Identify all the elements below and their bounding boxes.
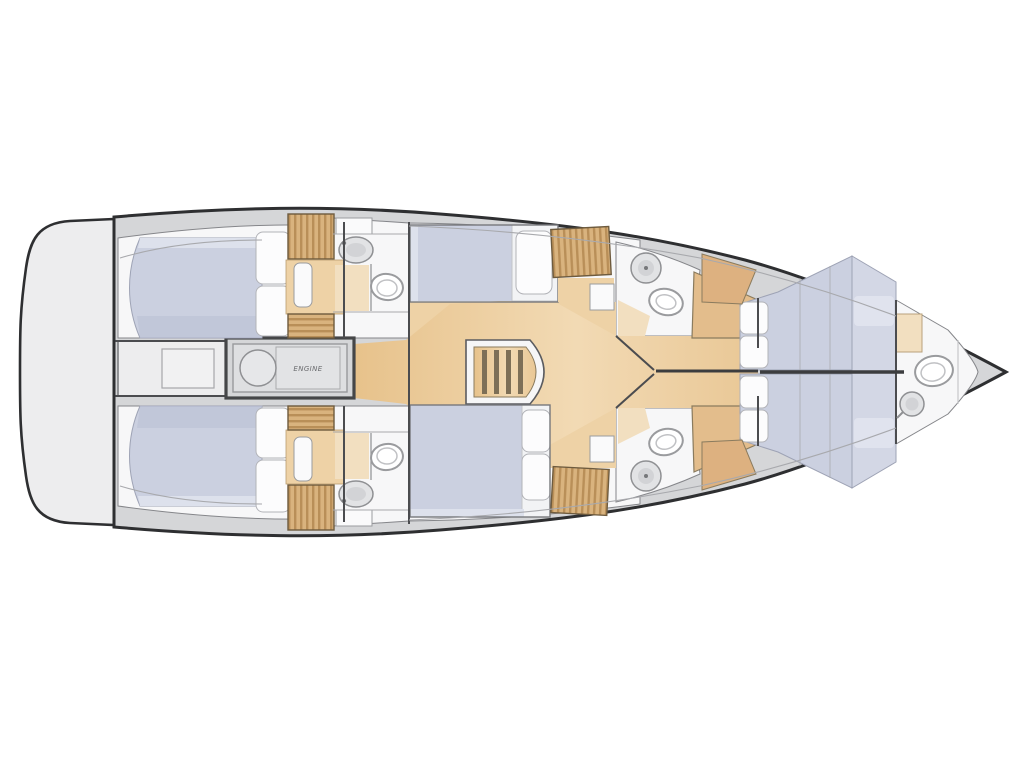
stair-step xyxy=(518,350,523,394)
mid-stbd-berth xyxy=(410,405,524,517)
pillow xyxy=(522,454,550,500)
side-cabinet xyxy=(896,314,922,352)
stair-step xyxy=(482,350,487,394)
engine-room: ENGINE xyxy=(226,338,354,398)
companionway-stairs xyxy=(466,340,544,404)
cabinet xyxy=(336,218,372,234)
pillow xyxy=(522,410,550,452)
wardrobe xyxy=(551,227,611,278)
head-floor xyxy=(335,433,369,479)
pillow xyxy=(740,376,768,408)
mid-cabin-port xyxy=(410,225,614,310)
pillow xyxy=(740,336,768,368)
yacht-floorplan: ENGINE xyxy=(0,0,1024,768)
storage-chest xyxy=(288,314,334,338)
stern-swim-platform xyxy=(20,219,114,525)
head-floor xyxy=(335,265,369,311)
engine-label: ENGINE xyxy=(293,365,322,373)
pillow xyxy=(516,231,552,294)
vanity-seat xyxy=(294,437,312,481)
stair-step xyxy=(506,350,511,394)
stair-step xyxy=(494,350,499,394)
wardrobe xyxy=(288,214,334,259)
cabinet xyxy=(336,510,372,526)
storage-chest xyxy=(288,406,334,430)
cabinet xyxy=(590,284,614,310)
mid-port-berth xyxy=(410,225,512,301)
pillow xyxy=(740,302,768,334)
wardrobe xyxy=(288,485,334,530)
vanity-seat xyxy=(294,263,312,307)
cabinet xyxy=(590,436,614,462)
pillow xyxy=(256,286,290,336)
deck-plan-canvas: ENGINE xyxy=(0,0,1024,768)
engine-pulley xyxy=(240,350,276,386)
pillow xyxy=(256,408,290,458)
side-console xyxy=(114,341,226,396)
pillow xyxy=(740,410,768,442)
